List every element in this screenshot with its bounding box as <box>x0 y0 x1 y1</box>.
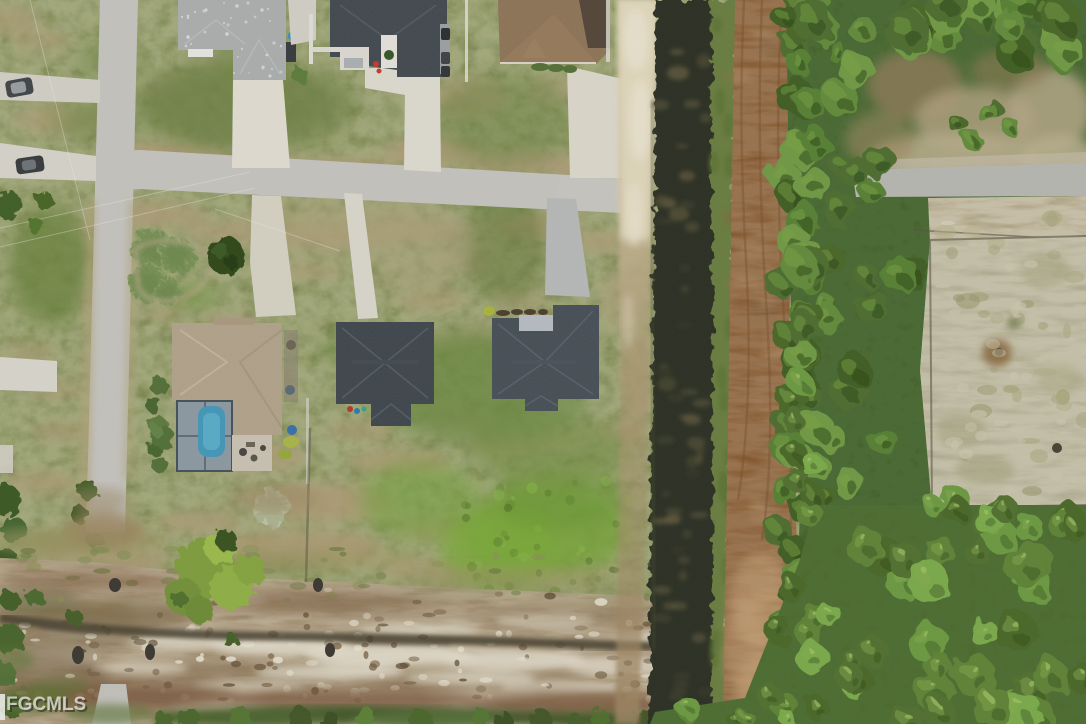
svg-text:FGCMLS: FGCMLS <box>6 694 86 715</box>
